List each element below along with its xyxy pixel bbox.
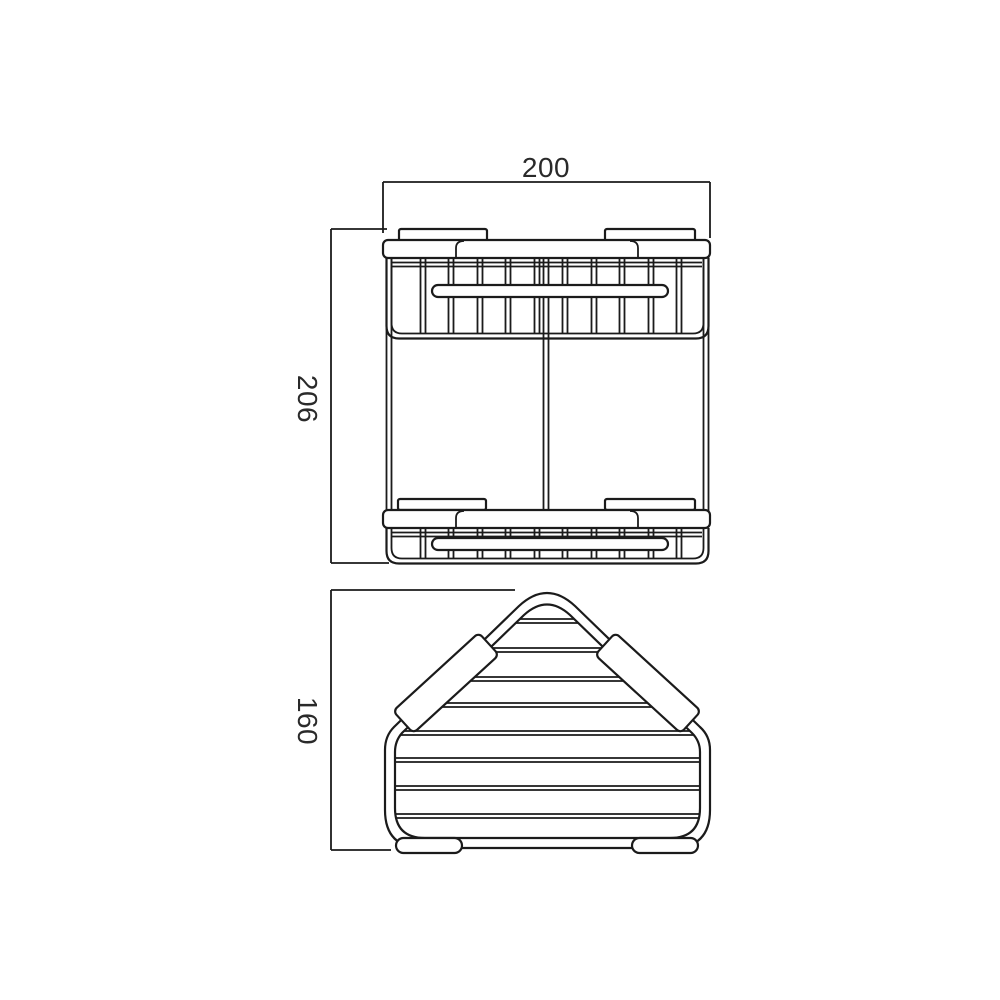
front-bottom-wall-rail	[383, 510, 710, 528]
dimension-front-height-lines	[331, 229, 389, 563]
front-bottom-basket-mid-rim	[432, 538, 668, 550]
plan-rim-inner-outline	[395, 605, 700, 839]
plan-right-front-bracket	[632, 838, 698, 853]
corner-basket-dimension-drawing: 200 206 160	[0, 0, 1000, 1000]
plan-view	[380, 593, 715, 853]
plan-rim-outer-outline	[385, 593, 710, 848]
dimension-front-width-label: 200	[522, 152, 570, 183]
dimension-front-width: 200	[383, 152, 710, 238]
technical-drawing-canvas: 200 206 160	[0, 0, 1000, 1000]
dimension-plan-depth-label: 160	[292, 697, 323, 745]
dimension-front-height-label: 206	[292, 375, 323, 423]
front-elevation-view	[383, 229, 710, 564]
front-top-basket-top-wires	[391, 263, 702, 267]
front-top-wall-rail	[383, 240, 710, 258]
front-bottom-left-mount-tab	[398, 499, 486, 510]
plan-right-mount-pad	[595, 633, 701, 733]
dimension-front-height: 206	[292, 229, 389, 563]
front-bottom-right-mount-tab	[605, 499, 695, 510]
front-top-basket-mid-rim	[432, 285, 668, 297]
front-top-basket-frame-outer	[387, 258, 709, 339]
front-bottom-basket-top-wires	[391, 533, 702, 537]
plan-left-mount-pad	[393, 633, 499, 733]
plan-left-front-bracket	[396, 838, 462, 853]
